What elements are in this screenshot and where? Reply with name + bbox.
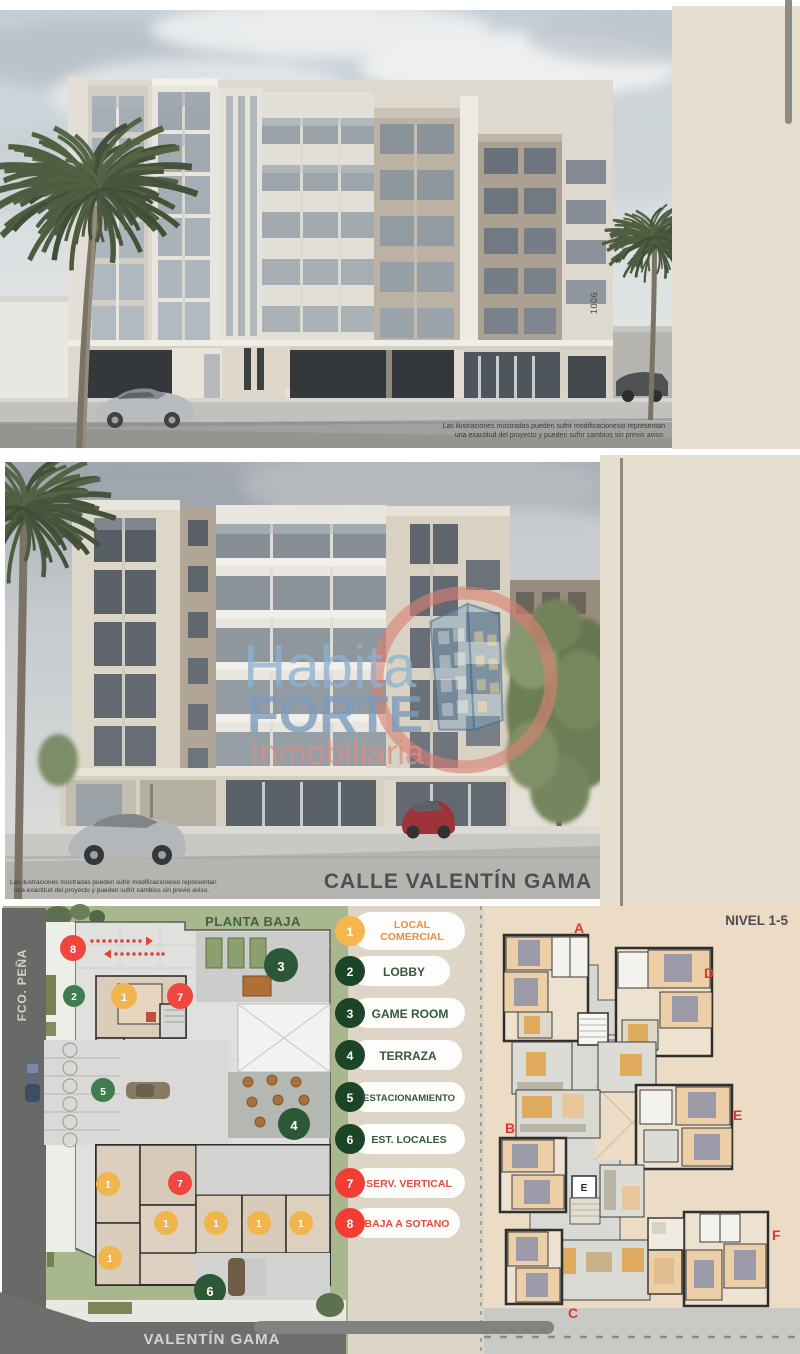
svg-text:3: 3 bbox=[277, 959, 284, 974]
svg-text:4: 4 bbox=[290, 1118, 298, 1133]
svg-text:FCO. PEÑA: FCO. PEÑA bbox=[14, 949, 29, 1022]
svg-text:CALLE VALENTÍN GAMA: CALLE VALENTÍN GAMA bbox=[324, 870, 592, 893]
svg-text:6: 6 bbox=[206, 1284, 213, 1299]
svg-text:1: 1 bbox=[298, 1219, 304, 1230]
svg-text:7: 7 bbox=[177, 1179, 183, 1190]
svg-text:E: E bbox=[581, 1183, 588, 1194]
svg-text:1: 1 bbox=[107, 1254, 113, 1265]
svg-text:una exactitud del proyecto y p: una exactitud del proyecto y pueden sufr… bbox=[14, 887, 209, 894]
svg-text:4: 4 bbox=[347, 1049, 354, 1063]
svg-text:F: F bbox=[772, 1227, 781, 1243]
svg-text:ESTACIONAMIENTO: ESTACIONAMIENTO bbox=[363, 1093, 455, 1104]
svg-text:1: 1 bbox=[347, 925, 354, 939]
svg-text:NIVEL 1-5: NIVEL 1-5 bbox=[725, 913, 788, 928]
svg-text:COMERCIAL: COMERCIAL bbox=[380, 931, 444, 943]
svg-text:E: E bbox=[733, 1107, 742, 1123]
svg-text:PLANTA BAJA: PLANTA BAJA bbox=[205, 914, 301, 929]
svg-text:8: 8 bbox=[347, 1217, 354, 1231]
svg-text:2: 2 bbox=[347, 965, 354, 979]
svg-text:5: 5 bbox=[100, 1087, 106, 1098]
svg-text:Las ilustraciones mostradas pu: Las ilustraciones mostradas pueden sufri… bbox=[10, 879, 217, 886]
svg-text:1: 1 bbox=[213, 1219, 219, 1230]
svg-text:C: C bbox=[568, 1305, 578, 1321]
svg-text:1: 1 bbox=[163, 1219, 169, 1230]
svg-text:BAJA A SOTANO: BAJA A SOTANO bbox=[365, 1218, 450, 1230]
svg-text:1: 1 bbox=[121, 992, 127, 1004]
svg-text:GAME ROOM: GAME ROOM bbox=[372, 1007, 449, 1021]
svg-text:LOBBY: LOBBY bbox=[383, 965, 425, 979]
svg-text:1: 1 bbox=[105, 1180, 111, 1191]
svg-text:una exactitud del proyecto y p: una exactitud del proyecto y pueden sufr… bbox=[455, 432, 665, 439]
svg-text:6: 6 bbox=[347, 1133, 354, 1147]
svg-text:1: 1 bbox=[256, 1219, 262, 1230]
svg-text:2: 2 bbox=[71, 992, 77, 1003]
svg-text:8: 8 bbox=[70, 944, 76, 956]
svg-text:D: D bbox=[704, 965, 714, 981]
svg-text:5: 5 bbox=[347, 1091, 354, 1105]
svg-text:7: 7 bbox=[347, 1177, 354, 1191]
svg-text:7: 7 bbox=[177, 992, 183, 1004]
svg-text:TERRAZA: TERRAZA bbox=[379, 1049, 437, 1063]
svg-text:LOCAL: LOCAL bbox=[394, 919, 431, 931]
svg-text:A: A bbox=[574, 920, 584, 936]
svg-text:B: B bbox=[505, 1120, 515, 1136]
svg-text:EST. LOCALES: EST. LOCALES bbox=[371, 1134, 446, 1146]
svg-text:SERV. VERTICAL: SERV. VERTICAL bbox=[366, 1178, 452, 1190]
svg-text:Inmobiliaria: Inmobiliaria bbox=[250, 734, 424, 772]
svg-text:3: 3 bbox=[347, 1007, 354, 1021]
svg-text:1006: 1006 bbox=[589, 292, 599, 314]
svg-text:Las ilustraciones mostradas pu: Las ilustraciones mostradas pueden sufri… bbox=[442, 423, 665, 430]
